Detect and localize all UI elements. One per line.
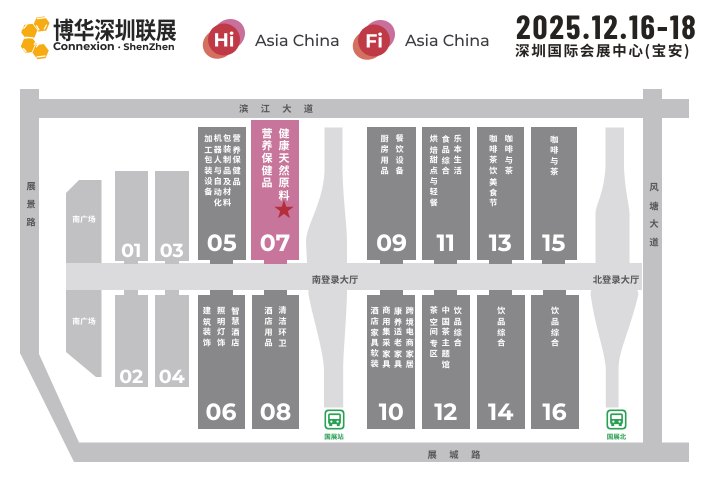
svg-text:Fi: Fi xyxy=(365,29,383,52)
svg-text:Hi: Hi xyxy=(213,28,234,51)
